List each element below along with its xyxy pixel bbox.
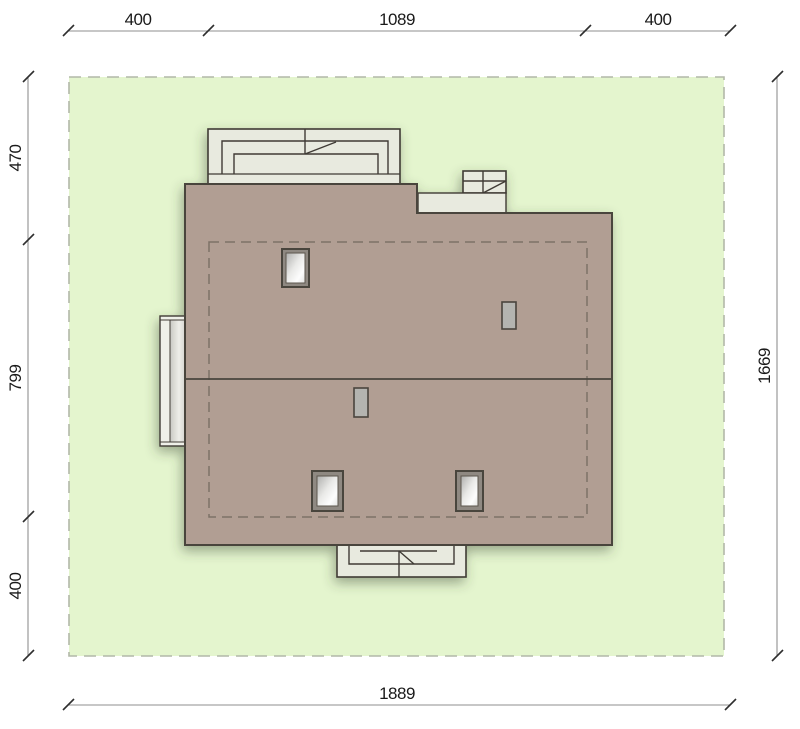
skylight-upper-left [282,249,309,287]
dimension-bottom: 1889 [63,684,736,710]
dim-label-top-right: 400 [645,10,672,29]
roof-vent-center [354,388,368,417]
dimension-top: 400 1089 400 [63,10,736,36]
main-roof [185,184,612,545]
entrance-steps [337,545,466,577]
roof-vent-right [502,302,516,329]
porch-strip [418,193,506,213]
dim-label-left-bottom: 400 [6,573,25,600]
site-plan-canvas: 400 1089 400 470 799 400 1669 1889 [0,0,800,729]
dim-label-top-left: 400 [125,10,152,29]
dim-label-left-top: 470 [6,145,25,172]
site-plan-drawing: 400 1089 400 470 799 400 1669 1889 [0,0,800,729]
skylight-lower-left [312,471,343,511]
dim-label-left-middle: 799 [6,365,25,392]
dim-label-bottom: 1889 [379,684,415,703]
bay-window-left [160,316,185,446]
dimension-right: 1669 [755,71,783,661]
dim-label-right: 1669 [755,348,774,384]
terrace-top [208,129,400,185]
dim-label-top-center: 1089 [379,10,415,29]
chimney [463,171,506,193]
dimension-left: 470 799 400 [6,71,34,661]
skylight-lower-right [456,471,483,511]
